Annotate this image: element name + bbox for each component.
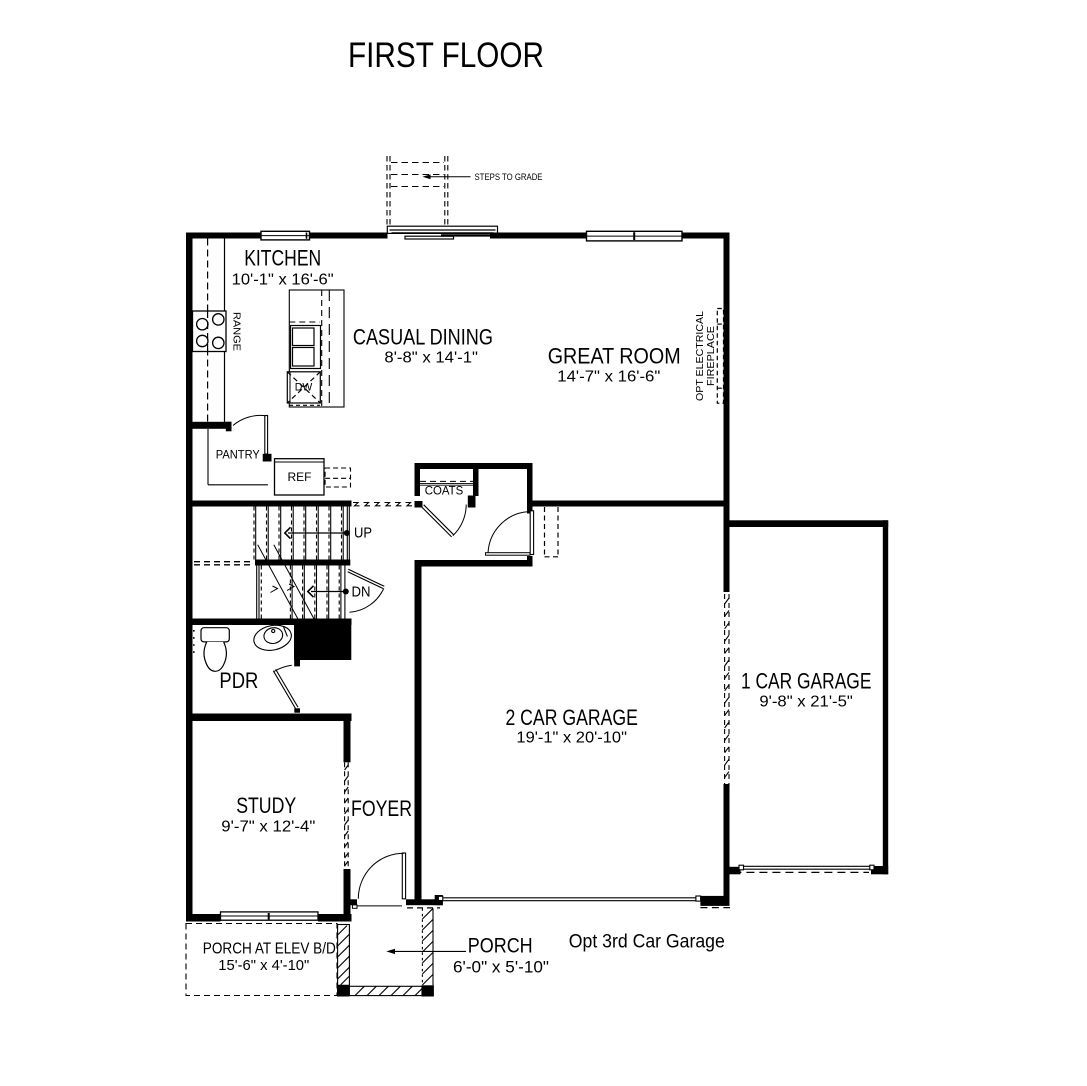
svg-text:Opt 3rd Car Garage: Opt 3rd Car Garage: [569, 931, 725, 952]
svg-text:8'-8" x 14'-1": 8'-8" x 14'-1": [384, 350, 478, 367]
svg-text:PORCH: PORCH: [468, 935, 533, 958]
svg-text:19'-1" x 20'-10": 19'-1" x 20'-10": [516, 729, 627, 746]
svg-text:1 CAR GARAGE: 1 CAR GARAGE: [741, 669, 872, 694]
svg-text:9'-7" x 12'-4": 9'-7" x 12'-4": [221, 818, 315, 835]
svg-text:PORCH AT ELEV B/D: PORCH AT ELEV B/D: [203, 940, 336, 957]
svg-text:UP: UP: [354, 526, 372, 542]
svg-text:STEPS TO GRADE: STEPS TO GRADE: [475, 172, 543, 183]
svg-text:FIRST FLOOR: FIRST FLOOR: [348, 36, 544, 75]
svg-text:PANTRY: PANTRY: [216, 450, 260, 462]
svg-text:COATS: COATS: [425, 486, 464, 498]
svg-text:6'-0" x 5'-10": 6'-0" x 5'-10": [453, 958, 549, 976]
svg-text:PDR: PDR: [219, 668, 258, 693]
svg-text:RANGE: RANGE: [231, 312, 243, 351]
svg-text:GREAT ROOM: GREAT ROOM: [548, 344, 681, 369]
svg-text:14'-7" x 16'-6": 14'-7" x 16'-6": [557, 368, 660, 385]
svg-text:KITCHEN: KITCHEN: [244, 245, 321, 270]
svg-text:STUDY: STUDY: [236, 793, 296, 818]
svg-text:FOYER: FOYER: [351, 796, 412, 821]
svg-text:DW: DW: [295, 382, 313, 394]
svg-text:CASUAL DINING: CASUAL DINING: [353, 324, 493, 349]
svg-text:DN: DN: [352, 584, 371, 600]
svg-text:9'-8" x 21'-5": 9'-8" x 21'-5": [759, 693, 853, 710]
svg-text:15'-6" x 4'-10": 15'-6" x 4'-10": [218, 957, 309, 974]
svg-text:10'-1" x 16'-6": 10'-1" x 16'-6": [232, 272, 334, 289]
svg-text:2 CAR GARAGE: 2 CAR GARAGE: [505, 705, 638, 730]
svg-text:FIREPLACE: FIREPLACE: [705, 326, 717, 386]
svg-text:REF: REF: [288, 472, 312, 484]
